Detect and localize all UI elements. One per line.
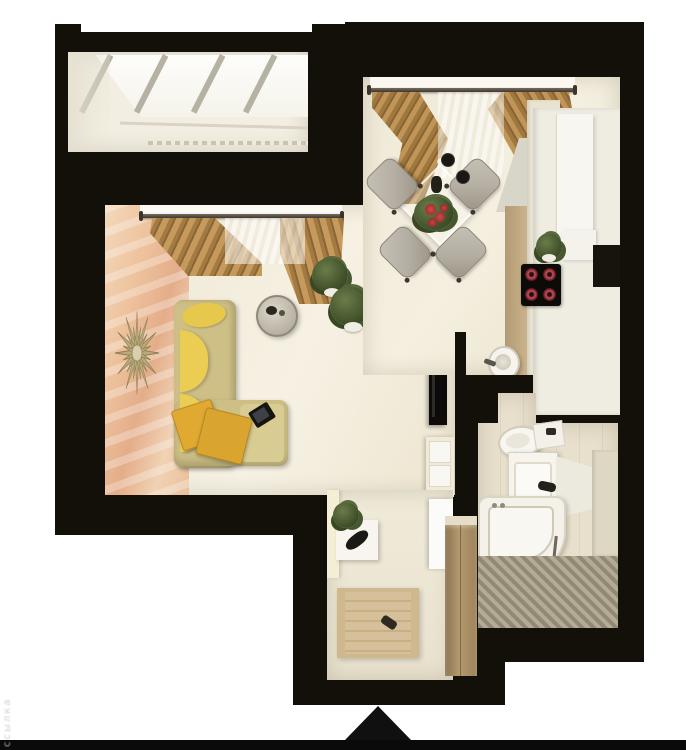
balcony-sill-line (120, 122, 308, 130)
living-sheer-curtain (225, 218, 305, 264)
plant-pot (344, 322, 362, 332)
coffee-table (256, 295, 298, 337)
decanter (431, 176, 442, 193)
sunburst-mirror (113, 308, 161, 398)
toilet-seat (505, 432, 531, 450)
tablet-screen (252, 407, 270, 424)
red-rose (425, 204, 436, 215)
wardrobe-top-cap (445, 516, 477, 525)
red-rose (428, 218, 437, 227)
toilet-cistern (532, 420, 565, 450)
entrance-arrow-icon (345, 706, 411, 740)
red-rose (440, 204, 448, 212)
kitchen-cabinet-panel (562, 230, 596, 260)
floor-plan-scene: ссылка (0, 0, 686, 750)
kitchen-cabinet-front (556, 114, 593, 242)
tv-partition-wall (455, 332, 466, 512)
hall-plant (333, 502, 359, 528)
tray-planks (345, 592, 411, 654)
toilet-button (546, 428, 556, 435)
oven-niche (593, 245, 620, 287)
burner-icon (543, 288, 556, 301)
burner-icon (525, 288, 538, 301)
wall-bottom-left (55, 495, 298, 535)
plant-pot (542, 254, 556, 262)
wall-notch-a (55, 24, 81, 34)
balcony-wall-shade (68, 52, 110, 152)
curtain-rod-finial (367, 85, 371, 95)
tub-faucet-dot (500, 503, 505, 508)
wardrobe-seam (460, 524, 461, 676)
coffee-table-decor (266, 306, 277, 315)
burner-icon (525, 268, 538, 281)
watermark: ссылка (2, 642, 22, 747)
bathtub-basin (488, 506, 554, 560)
wardrobe (445, 524, 477, 676)
wall-notch-b (312, 24, 345, 34)
washbasin-nook-wall (466, 375, 530, 393)
tv-stand-panel (429, 465, 451, 487)
bath-side-ledge (592, 450, 618, 556)
bottom-frame-bar (0, 740, 686, 750)
bathroom-wall-stub (478, 393, 498, 423)
cooktop (521, 264, 561, 306)
tv-stand-panel (429, 441, 451, 463)
mosaic-floor (478, 556, 618, 628)
balcony-railing (148, 141, 308, 145)
entry-wood-tray (337, 588, 419, 658)
tub-faucet-dot (492, 503, 497, 508)
burner-icon (543, 268, 556, 281)
wine-bottle (456, 170, 470, 184)
wine-bottle (441, 153, 455, 167)
coffee-table-decor (279, 310, 285, 316)
balcony-room (68, 52, 308, 152)
curtain-rod-finial (573, 85, 577, 95)
washbasin-bowl (495, 354, 511, 370)
curtain-rod-finial (139, 211, 143, 221)
